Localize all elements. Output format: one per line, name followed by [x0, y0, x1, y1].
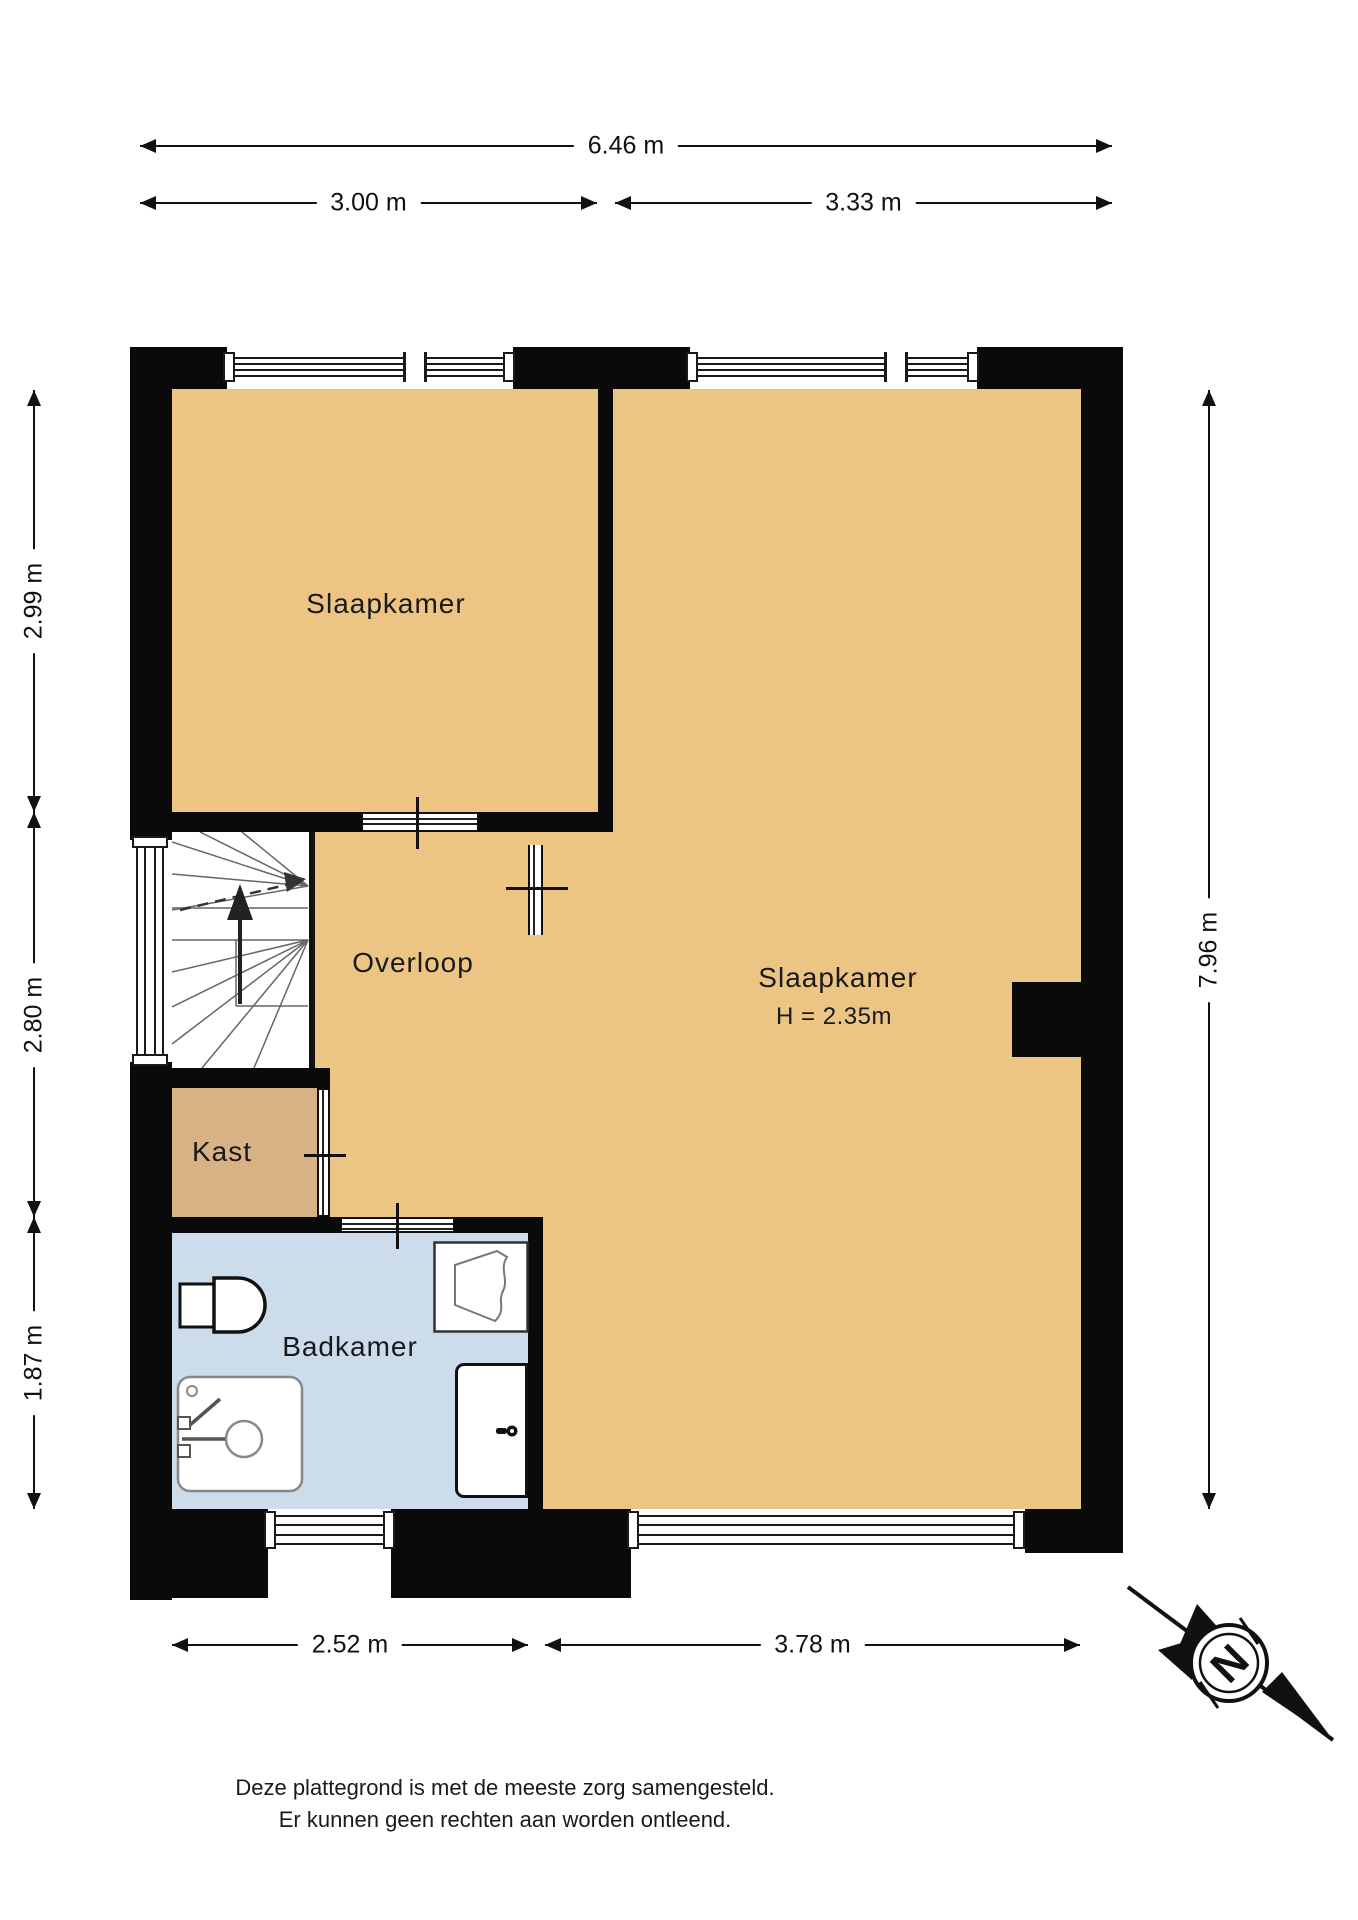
dim-bottom-right-label: 3.78 m — [760, 1631, 864, 1660]
wall-bathroom-top-a — [130, 1217, 342, 1233]
window-bedroom-bottom — [631, 1515, 1025, 1545]
window-cap — [627, 1511, 639, 1549]
dim-left-bottom-label: 1.87 m — [18, 1311, 51, 1415]
opening-tick — [396, 1203, 399, 1249]
disclaimer: Deze plattegrond is met de meeste zorg s… — [160, 1772, 850, 1836]
wall-bathroom-top-b — [453, 1217, 543, 1233]
stairs-icon — [172, 832, 315, 1068]
window-bathroom-bottom — [268, 1515, 391, 1545]
window-cap — [503, 352, 515, 382]
dim-top-left: 3.00 m — [140, 202, 597, 204]
window-cap — [132, 1054, 168, 1066]
window-cap — [967, 352, 979, 382]
floor-landing — [315, 832, 613, 1233]
wall-left-upper — [130, 347, 172, 840]
window-cap — [1013, 1511, 1025, 1549]
bathroom-door-leaf — [455, 1363, 528, 1498]
duct-protrusion — [1012, 982, 1081, 1057]
dim-right-total: 7.96 m — [1208, 390, 1210, 1509]
dim-top-left-label: 3.00 m — [316, 189, 420, 218]
dim-top-right-label: 3.33 m — [811, 189, 915, 218]
dim-bottom-left: 2.52 m — [172, 1644, 528, 1646]
staircase — [172, 832, 315, 1068]
window-cap — [383, 1511, 395, 1549]
floor-bedroom-strip — [543, 1233, 613, 1509]
opening-landing-bathroom — [342, 1217, 453, 1233]
dim-left-top: 2.99 m — [33, 390, 35, 812]
dim-bottom-left-label: 2.52 m — [298, 1631, 402, 1660]
dim-left-middle: 2.80 m — [33, 812, 35, 1217]
dim-right-total-label: 7.96 m — [1193, 897, 1226, 1001]
floorplan-sheet: Slaapkamer Slaapkamer H = 2.35m Overloop… — [0, 0, 1358, 1920]
window-stairwell-left — [136, 840, 164, 1062]
window-mullion — [403, 352, 427, 382]
wall-bottom-middle-block — [391, 1509, 631, 1598]
wall-divider-bedrooms — [598, 389, 613, 812]
north-arrow-icon: N — [1100, 1560, 1358, 1760]
label-closet: Kast — [192, 1136, 252, 1168]
wall-closet-top — [130, 1068, 330, 1088]
door-handle-icon — [495, 1424, 519, 1438]
floor-bedroom-large — [613, 389, 1081, 1509]
wall-landing-north-b — [477, 812, 613, 832]
label-landing: Overloop — [352, 947, 474, 979]
dim-left-top-label: 2.99 m — [18, 549, 51, 653]
dim-top-right: 3.33 m — [615, 202, 1112, 204]
wall-right — [1081, 347, 1123, 1553]
label-bedroom-large-height: H = 2.35m — [776, 1003, 892, 1031]
opening-bedroom-small-landing — [363, 812, 477, 832]
window-cap — [223, 352, 235, 382]
wall-bottom-left-block — [130, 1509, 268, 1598]
opening-landing-bedroom-large — [528, 845, 543, 935]
door-closet — [317, 1090, 330, 1215]
disclaimer-line1: Deze plattegrond is met de meeste zorg s… — [160, 1772, 850, 1804]
dim-left-middle-label: 2.80 m — [18, 962, 51, 1066]
sink-icon — [433, 1241, 529, 1338]
window-cap — [132, 836, 168, 848]
window-top-left — [227, 357, 513, 377]
window-top-right — [690, 357, 977, 377]
window-mullion — [884, 352, 908, 382]
dim-left-bottom: 1.87 m — [33, 1217, 35, 1509]
compass: N — [1100, 1560, 1358, 1765]
dim-bottom-right: 3.78 m — [545, 1644, 1080, 1646]
window-cap — [686, 352, 698, 382]
wall-landing-north-a — [130, 812, 363, 832]
window-cap — [264, 1511, 276, 1549]
opening-tick — [506, 887, 568, 890]
opening-tick — [416, 797, 419, 849]
toilet-icon — [178, 1276, 268, 1339]
shower-icon — [176, 1375, 304, 1498]
label-bathroom: Badkamer — [282, 1331, 418, 1363]
wall-bathroom-right — [528, 1233, 543, 1509]
wall-top-middle-segment — [513, 347, 690, 389]
dim-top-total-label: 6.46 m — [574, 132, 678, 161]
label-bedroom-small: Slaapkamer — [306, 588, 465, 620]
opening-tick — [304, 1154, 346, 1157]
label-bedroom-large: Slaapkamer — [758, 962, 917, 994]
wall-bottom-right-block — [1025, 1509, 1123, 1553]
disclaimer-line2: Er kunnen geen rechten aan worden ontlee… — [160, 1804, 850, 1836]
dim-top-total: 6.46 m — [140, 145, 1112, 147]
